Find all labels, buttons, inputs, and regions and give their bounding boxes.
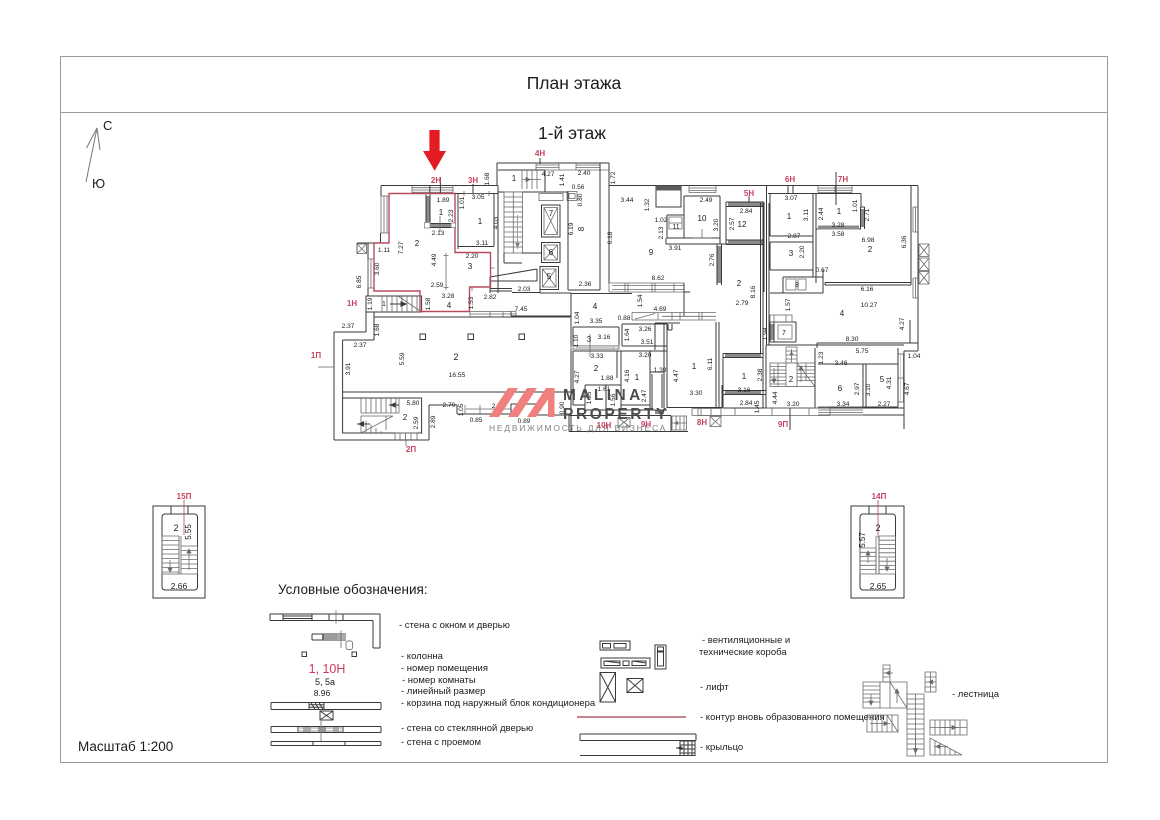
svg-text:3.07: 3.07 [785,195,798,202]
svg-text:1: 1 [512,174,517,183]
svg-text:1.58: 1.58 [425,297,432,310]
svg-text:3.20: 3.20 [787,401,800,408]
svg-text:1.05: 1.05 [458,403,465,416]
svg-text:- крыльцо: - крыльцо [700,742,743,753]
svg-text:MALINA: MALINA [563,387,644,404]
svg-text:1.41: 1.41 [559,173,566,186]
svg-text:2.82: 2.82 [484,294,497,301]
svg-text:0.80: 0.80 [577,193,584,206]
svg-text:11: 11 [672,224,679,231]
svg-text:3.16: 3.16 [598,334,611,341]
svg-text:5, 5а: 5, 5а [315,677,335,687]
svg-text:12: 12 [738,220,747,229]
svg-text:1: 1 [635,373,640,382]
svg-text:6.98: 6.98 [862,237,875,244]
svg-text:3.91: 3.91 [345,362,352,375]
svg-text:4.16: 4.16 [624,369,631,382]
svg-text:1.10: 1.10 [573,334,580,347]
svg-text:С: С [103,118,112,133]
svg-text:8.62: 8.62 [652,275,665,282]
svg-text:2.23: 2.23 [448,209,455,222]
svg-text:9: 9 [649,248,654,257]
svg-text:5.75: 5.75 [856,348,869,355]
svg-text:2: 2 [789,375,794,384]
svg-text:1-й этаж: 1-й этаж [538,123,606,143]
svg-text:3.05: 3.05 [472,194,485,201]
svg-text:1.01: 1.01 [459,196,466,209]
svg-text:2.20: 2.20 [799,245,806,258]
svg-text:7Н: 7Н [838,175,848,184]
svg-text:6.18: 6.18 [607,231,614,244]
svg-text:1П: 1П [311,351,321,360]
svg-text:3: 3 [468,262,473,271]
svg-text:1: 1 [439,208,444,217]
svg-text:1.88: 1.88 [601,375,614,382]
svg-text:2.59: 2.59 [431,282,444,289]
svg-text:1: 1 [382,301,386,308]
svg-text:4: 4 [593,302,598,311]
svg-text:- лифт: - лифт [700,682,729,693]
svg-text:4.27: 4.27 [899,317,906,330]
svg-text:2.57: 2.57 [729,217,736,230]
svg-text:1: 1 [742,372,747,381]
svg-text:4.27: 4.27 [542,171,555,178]
svg-text:2.84: 2.84 [740,400,753,407]
svg-text:- колонна: - колонна [401,651,444,662]
svg-text:План этажа: План этажа [527,73,622,93]
svg-text:8.16: 8.16 [750,285,757,298]
svg-text:8.30: 8.30 [846,336,859,343]
svg-text:3.91: 3.91 [669,245,682,252]
svg-text:1.23: 1.23 [818,351,825,364]
svg-text:2Н: 2Н [431,176,441,185]
svg-text:1.01: 1.01 [852,199,859,212]
svg-text:6.36: 6.36 [901,235,908,248]
svg-text:3.20: 3.20 [713,218,720,231]
svg-text:10Н: 10Н [597,421,612,430]
svg-text:4.69: 4.69 [654,306,667,313]
svg-text:- вентиляционные и: - вентиляционные и [702,635,790,646]
svg-text:2.70: 2.70 [443,402,456,409]
svg-text:2: 2 [737,279,742,288]
svg-text:1: 1 [837,207,842,216]
svg-text:6Н: 6Н [785,175,795,184]
svg-text:7.45: 7.45 [515,306,528,313]
svg-text:4.03: 4.03 [493,216,500,229]
svg-text:- номер комнаты: - номер комнаты [402,675,476,686]
svg-text:1.02: 1.02 [655,217,668,224]
svg-text:2.49: 2.49 [700,197,713,204]
svg-text:14П: 14П [872,492,887,501]
svg-text:4.47: 4.47 [673,369,680,382]
svg-text:2: 2 [594,364,599,373]
svg-text:6.85: 6.85 [356,275,363,288]
svg-text:2.59: 2.59 [413,416,420,429]
svg-text:6: 6 [549,248,554,257]
svg-text:2.66: 2.66 [171,581,188,591]
svg-text:7: 7 [782,330,786,337]
svg-text:6: 6 [838,384,843,393]
svg-text:4.44: 4.44 [772,391,779,404]
svg-text:3.44: 3.44 [621,197,634,204]
svg-text:1.57: 1.57 [785,298,792,311]
svg-text:Условные обозначения:: Условные обозначения: [278,582,428,597]
svg-text:- линейный размер: - линейный размер [401,686,485,697]
svg-text:1.11: 1.11 [378,247,391,254]
svg-text:2.20: 2.20 [466,253,479,260]
svg-text:8: 8 [577,226,586,231]
svg-text:5Н: 5Н [744,189,754,198]
svg-text:1Н: 1Н [347,299,357,308]
svg-text:- стена с проемом: - стена с проемом [401,737,481,748]
svg-text:3.33: 3.33 [591,353,604,360]
svg-text:9Н: 9Н [641,420,651,429]
svg-text:PROPERTY: PROPERTY [563,406,669,423]
svg-text:1, 10Н: 1, 10Н [309,662,346,676]
svg-text:2: 2 [403,413,408,422]
svg-text:8Н: 8Н [697,418,707,427]
svg-text:- лестница: - лестница [952,689,1000,700]
svg-text:1.89: 1.89 [437,197,450,204]
svg-text:2.37: 2.37 [342,323,355,330]
svg-text:3.11: 3.11 [476,240,489,247]
svg-text:1.94: 1.94 [762,327,769,340]
svg-text:технические короба: технические короба [699,647,787,658]
svg-text:4: 4 [840,309,845,318]
svg-text:Масштаб 1:200: Масштаб 1:200 [78,739,173,754]
svg-text:5.80: 5.80 [407,400,420,407]
svg-text:2: 2 [868,245,873,254]
svg-text:4.67: 4.67 [904,382,911,395]
svg-text:- корзина под наружный блок ко: - корзина под наружный блок кондиционера [401,698,596,709]
svg-text:8.96: 8.96 [314,688,331,698]
svg-text:- номер помещения: - номер помещения [401,663,488,674]
svg-text:- стена с окном и дверью: - стена с окном и дверью [399,620,510,631]
svg-text:3.46: 3.46 [835,360,848,367]
svg-text:3.58: 3.58 [832,231,845,238]
svg-text:5.57: 5.57 [858,532,867,548]
svg-text:2П: 2П [406,445,416,454]
svg-text:0.56: 0.56 [572,184,585,191]
svg-text:16.55: 16.55 [449,372,466,379]
svg-text:5.59: 5.59 [399,352,406,365]
svg-text:3.20: 3.20 [639,352,652,359]
svg-text:3: 3 [587,335,592,344]
svg-text:3.11: 3.11 [803,208,810,221]
svg-text:7: 7 [549,209,554,218]
svg-text:2.03: 2.03 [518,286,531,293]
svg-text:3.16: 3.16 [738,387,751,394]
svg-text:1.54: 1.54 [637,294,644,307]
svg-text:1.45: 1.45 [754,400,761,413]
svg-text:- контур вновь образованного п: - контур вновь образованного помещения [700,712,885,723]
svg-text:1: 1 [787,212,792,221]
svg-text:1.68: 1.68 [484,172,491,185]
svg-text:2: 2 [173,523,178,533]
svg-text:2.97: 2.97 [854,382,861,395]
svg-text:5.55: 5.55 [184,524,193,540]
svg-text:3.26: 3.26 [639,326,652,333]
svg-text:2.79: 2.79 [736,300,749,307]
svg-text:1: 1 [692,362,697,371]
svg-text:15П: 15П [177,492,192,501]
svg-text:10: 10 [698,214,707,223]
svg-text:0.88: 0.88 [618,315,631,322]
svg-text:2.37: 2.37 [354,342,367,349]
svg-text:4.49: 4.49 [431,253,438,266]
svg-text:2.36: 2.36 [579,281,592,288]
svg-text:10.27: 10.27 [861,302,878,309]
svg-text:2.13: 2.13 [432,230,445,237]
svg-text:2: 2 [453,352,458,362]
svg-text:9П: 9П [778,420,788,429]
svg-text:1.04: 1.04 [908,353,921,360]
svg-text:2.44: 2.44 [818,207,825,220]
svg-text:6.16: 6.16 [861,286,874,293]
svg-text:1.04: 1.04 [574,311,581,324]
svg-text:3Н: 3Н [468,176,478,185]
svg-text:3.28: 3.28 [832,222,845,229]
svg-text:3.35: 3.35 [590,318,603,325]
svg-text:1.68: 1.68 [374,323,381,336]
svg-text:0.67: 0.67 [816,267,829,274]
svg-text:1.39: 1.39 [654,367,667,374]
svg-text:2.38: 2.38 [757,368,764,381]
svg-text:1.32: 1.32 [644,198,651,211]
svg-text:2.84: 2.84 [740,208,753,215]
svg-text:2.76: 2.76 [709,253,716,266]
svg-text:8: 8 [795,282,799,289]
svg-text:6.19: 6.19 [568,222,575,235]
svg-text:2: 2 [875,523,880,533]
svg-text:2.71: 2.71 [864,208,871,221]
svg-text:Ю: Ю [92,176,105,191]
svg-text:1.53: 1.53 [468,296,475,309]
svg-text:2.65: 2.65 [870,581,887,591]
svg-text:4.27: 4.27 [574,370,581,383]
svg-text:0.85: 0.85 [470,417,483,424]
svg-text:2.27: 2.27 [878,401,891,408]
svg-text:3.60: 3.60 [374,262,381,275]
svg-text:3.51: 3.51 [641,339,654,346]
svg-text:6.11: 6.11 [707,357,714,370]
svg-text:5: 5 [880,375,885,384]
svg-text:2: 2 [415,239,420,248]
svg-text:5: 5 [547,272,552,281]
svg-text:2.87: 2.87 [788,233,801,240]
svg-text:2.89: 2.89 [430,415,437,428]
svg-text:3: 3 [789,249,794,258]
svg-text:4.31: 4.31 [886,376,893,389]
svg-text:1.64: 1.64 [624,328,631,341]
svg-text:4Н: 4Н [535,149,545,158]
svg-text:1: 1 [478,217,483,226]
svg-text:4: 4 [447,301,452,310]
svg-text:1.19: 1.19 [367,297,374,310]
svg-text:3.30: 3.30 [690,390,703,397]
svg-text:- стена со стеклянной дверью: - стена со стеклянной дверью [401,723,533,734]
svg-text:3.10: 3.10 [865,383,872,396]
svg-text:3.34: 3.34 [837,401,850,408]
svg-text:1.72: 1.72 [610,171,617,184]
svg-text:2.40: 2.40 [578,170,591,177]
svg-text:2.13: 2.13 [658,226,665,239]
svg-text:3.28: 3.28 [442,293,455,300]
svg-text:7.27: 7.27 [398,241,405,254]
